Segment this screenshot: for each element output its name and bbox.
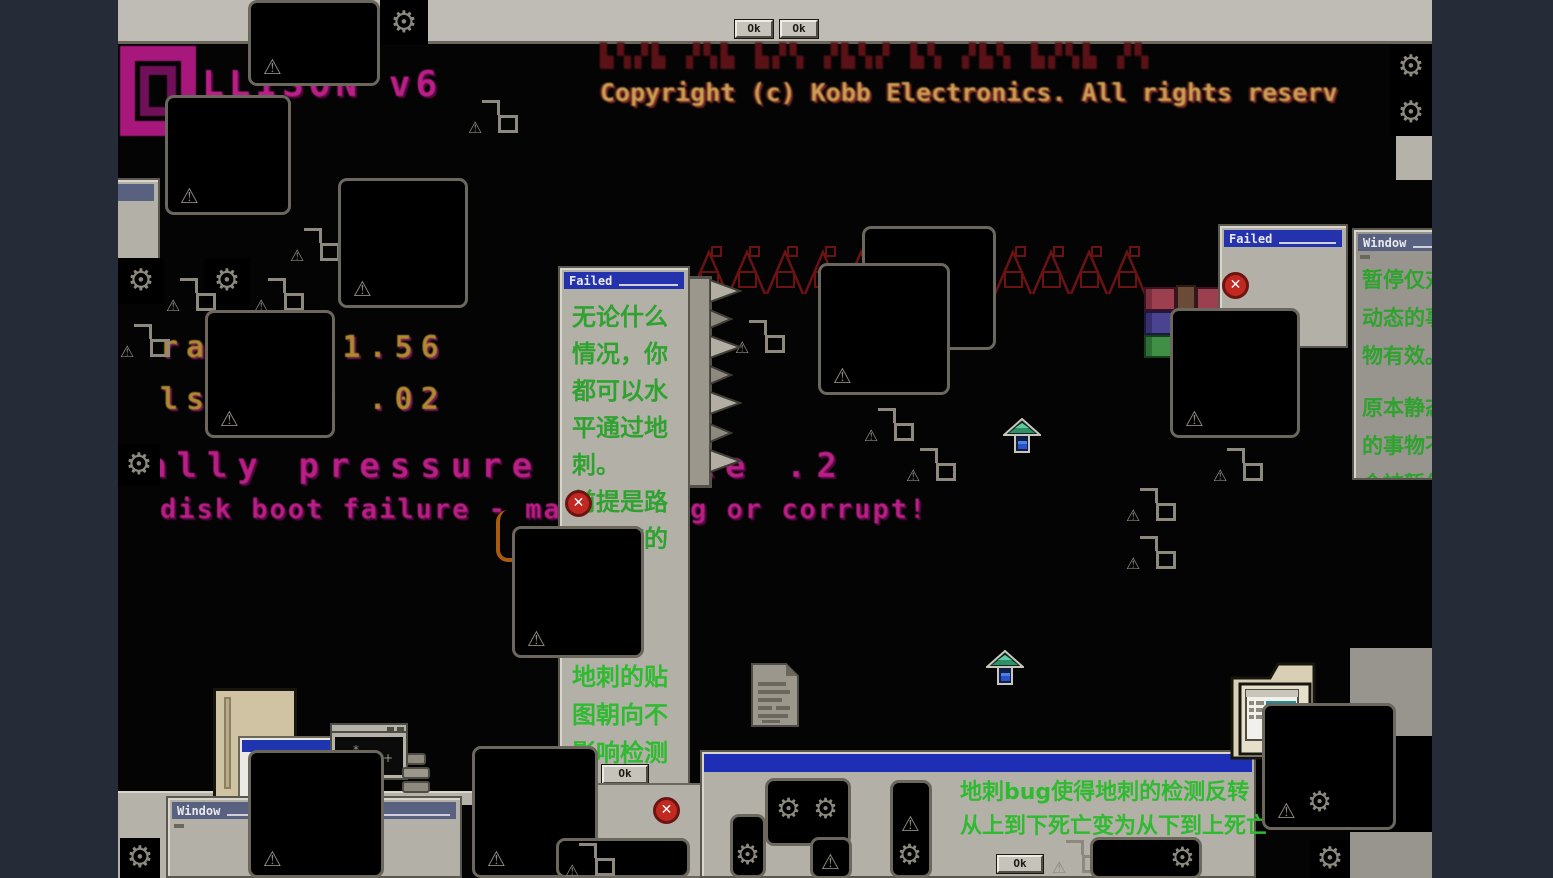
window-bottom-center-titlebar[interactable] [704, 754, 1252, 772]
pause-panel-title: Window [1363, 236, 1406, 250]
warning-icon: ⚠ [263, 849, 282, 870]
warning-icon: ⚠ [1277, 801, 1296, 822]
warning-icon: ⚠ [353, 279, 372, 300]
warning-icon: ⚠ [166, 298, 180, 314]
gear-tile: ⚙ [1310, 840, 1350, 878]
gear-icon: ⚙ [1307, 788, 1332, 816]
warning-cluster: ⚠ [468, 100, 520, 136]
dialog-text-line: 无论什么 [572, 304, 668, 332]
warning-icon: ⚠ [120, 344, 134, 360]
pause-text-line: 暂停仅对 [1362, 268, 1432, 292]
ok-button-top-1[interactable]: Ok [735, 20, 773, 38]
warning-icon: ⚠ [1213, 468, 1227, 484]
dialog-text-line: 图朝向不 [572, 702, 668, 730]
warning-icon: ⚠ [290, 248, 304, 264]
arrow-sprite [986, 650, 1024, 688]
censored-box: ⚠ ⚙ [890, 780, 932, 878]
censored-box: ⚠ [338, 178, 468, 308]
pause-text-line: 会被暂停 [1362, 472, 1432, 480]
censored-box: ⚠ [810, 837, 852, 878]
dialog-text-line: 地刺的贴 [572, 664, 668, 692]
gear-icon: ⚙ [126, 450, 153, 480]
minimize-dash [174, 824, 184, 828]
warning-cluster: ⚠ [1126, 488, 1178, 524]
window-bottom-left-title: Window [177, 804, 220, 818]
warning-icon: ⚠ [180, 186, 199, 207]
dialog-text-line: 平通过地 [572, 415, 668, 443]
warning-cluster: ⚠ [254, 278, 306, 314]
warning-icon: ⚠ [1185, 409, 1204, 430]
gear-tile: ⚙ [1390, 90, 1432, 136]
failed-dialog-titlebar[interactable]: Failed [564, 272, 684, 289]
warning-cluster: ⚠ [565, 843, 617, 878]
censored-box: ⚙ [730, 814, 766, 878]
gear-tile: ⚙ [120, 838, 160, 878]
boot-copyright: Copyright (c) Kobb Electronics. All righ… [600, 78, 1338, 107]
pipes [402, 753, 432, 797]
gear-icon: ⚙ [1317, 844, 1344, 874]
ok-button-dialog[interactable]: Ok [602, 765, 648, 784]
pause-text-line: 原本静态 [1362, 396, 1432, 420]
warning-cluster: ⚠ [906, 448, 958, 484]
censored-box: ⚠ [205, 310, 335, 438]
close-icon: ✕ [573, 495, 585, 511]
gear-tile: ⚙ [380, 0, 428, 45]
warning-cluster: ⚠ [166, 278, 218, 314]
gear-icon: ⚙ [813, 795, 838, 823]
gear-tile: ⚙ [1390, 44, 1432, 90]
warning-icon: ⚠ [220, 409, 239, 430]
censored-box: ⚠ [165, 95, 291, 215]
spike-bug-text-line-1: 地刺bug使得地刺的检测反转 [960, 780, 1249, 805]
warning-icon: ⚠ [527, 629, 546, 650]
error-icon[interactable]: ✕ [653, 797, 680, 824]
warning-cluster: ⚠ [1126, 536, 1178, 572]
spike-bug-text-line-2: 从上到下死亡变为从下到上死亡 [960, 814, 1268, 839]
gear-icon: ⚙ [776, 795, 801, 823]
censored-box: ⚠ [512, 526, 644, 658]
warning-icon: ⚠ [1126, 556, 1140, 572]
pause-text-line: 的事物不 [1362, 434, 1432, 458]
close-icon: ✕ [661, 802, 673, 818]
censored-box: ⚠ [248, 750, 384, 878]
screen-glyph: + [383, 751, 393, 765]
warning-icon: ⚠ [864, 428, 878, 444]
censored-box: ⚠ [818, 263, 950, 395]
dialog-text-line: 都可以水 [572, 378, 668, 406]
ok-button-bottom[interactable]: Ok [997, 855, 1043, 873]
warning-icon: ⚠ [821, 852, 840, 873]
censored-box: ⚠ ⚙ [1262, 703, 1396, 830]
ok-button-top-2[interactable]: Ok [780, 20, 818, 38]
document-icon [748, 660, 802, 730]
dialog-text-line: 情况，你 [572, 341, 668, 369]
warning-icon: ⚠ [901, 814, 920, 835]
warning-cluster: ⚠ [1213, 448, 1265, 484]
pause-text-line: 动态的事 [1362, 306, 1432, 330]
censored-box: ⚠ [1170, 308, 1300, 438]
boot-error-line-right: g or corrupt! [690, 494, 927, 525]
pause-panel-titlebar[interactable]: Window [1358, 234, 1432, 251]
dialog-text-line: 刺。 [572, 452, 620, 480]
warning-icon: ⚠ [565, 863, 579, 878]
gray-tile [1350, 832, 1432, 878]
gear-icon: ⚙ [1398, 52, 1425, 82]
gear-tile: ⚙ [118, 258, 164, 304]
gear-tile: ⚙ [118, 444, 160, 486]
gear-icon: ⚙ [391, 8, 418, 38]
warning-cluster: ⚠ [290, 228, 342, 264]
pause-panel: Window 暂停仅对 动态的事 物有效。 原本静态 的事物不 会被暂停 [1352, 228, 1432, 480]
warning-cluster: ⚠ [120, 324, 172, 360]
close-icon: ✕ [1230, 277, 1242, 293]
game-viewport: Ok Ok LLISON v6 ▙▚▞▙ ▞▚▙ ▙▞▚ ▞▙▚▞ ▙▚ ▞▙▚… [118, 0, 1432, 878]
minimize-dash [1360, 255, 1370, 259]
gear-icon: ⚙ [128, 266, 155, 296]
error-icon[interactable]: ✕ [1222, 272, 1249, 299]
censored-box: ⚠ [248, 0, 380, 86]
failed-dialog-title: Failed [569, 274, 612, 288]
censored-box: ⚙ ⚙ [765, 778, 851, 846]
gear-icon: ⚙ [127, 843, 154, 873]
gear-icon: ⚙ [897, 841, 922, 869]
warning-icon: ⚠ [1052, 860, 1066, 876]
warning-icon: ⚠ [833, 366, 852, 387]
wall-spikes [710, 278, 744, 486]
gray-tile [1396, 136, 1432, 180]
pause-text-line: 物有效。 [1362, 344, 1432, 368]
failed-window-titlebar[interactable]: Failed [1224, 230, 1342, 247]
censored-box: ⚙ [1090, 837, 1202, 878]
game-screen: Ok Ok LLISON v6 ▙▚▞▙ ▞▚▙ ▙▞▚ ▞▙▚▞ ▙▚ ▞▙▚… [0, 0, 1553, 878]
block-red [1144, 287, 1176, 311]
boot-glitch-line: ▙▚▞▙ ▞▚▙ ▙▞▚ ▞▙▚▞ ▙▚ ▞▙▚ ▙▞▚▙ ▞▚ [600, 44, 1152, 69]
gear-icon: ⚙ [735, 841, 760, 869]
gear-icon: ⚙ [1170, 844, 1195, 872]
error-icon[interactable]: ✕ [565, 490, 592, 517]
warning-icon: ⚠ [487, 849, 506, 870]
arrow-sprite [1003, 418, 1041, 456]
partial-window-titlebar [118, 184, 154, 201]
warning-icon: ⚠ [1126, 508, 1140, 524]
warning-icon: ⚠ [468, 120, 482, 136]
gear-icon: ⚙ [1398, 98, 1425, 128]
warning-icon: ⚠ [263, 57, 282, 78]
warning-cluster: ⚠ [864, 408, 916, 444]
partial-window-left [118, 178, 160, 262]
warning-icon: ⚠ [906, 468, 920, 484]
window-bottom-center: 地刺bug使得地刺的检测反转 从上到下死亡变为从下到上死亡 Ok ⚙ ⚙ ⚙ ⚠… [700, 750, 1256, 878]
failed-window-title: Failed [1229, 232, 1272, 246]
